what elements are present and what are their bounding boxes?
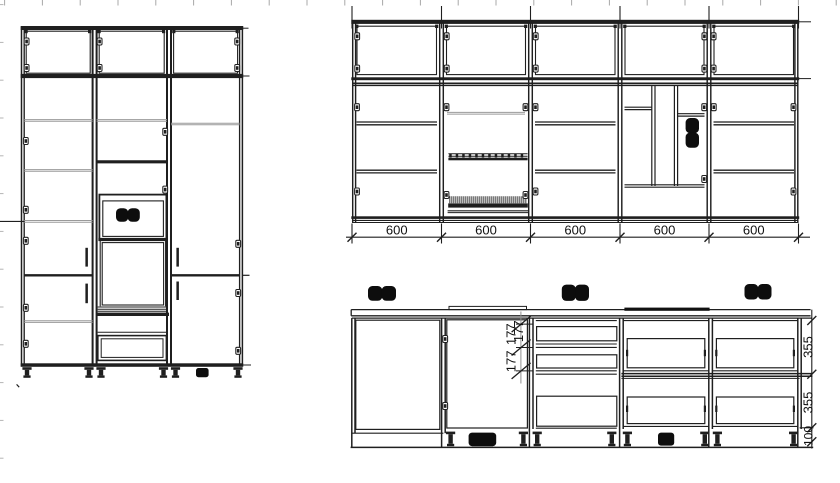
svg-text:100: 100	[802, 426, 816, 446]
svg-text:600: 600	[386, 223, 408, 238]
svg-text:177: 177	[511, 320, 526, 342]
svg-text:355: 355	[800, 336, 815, 358]
svg-text:600: 600	[743, 223, 765, 238]
svg-text:355: 355	[800, 392, 815, 414]
svg-text:600: 600	[654, 223, 676, 238]
svg-text:600: 600	[564, 223, 586, 238]
svg-text:177: 177	[504, 351, 519, 373]
svg-text:600: 600	[475, 223, 497, 238]
